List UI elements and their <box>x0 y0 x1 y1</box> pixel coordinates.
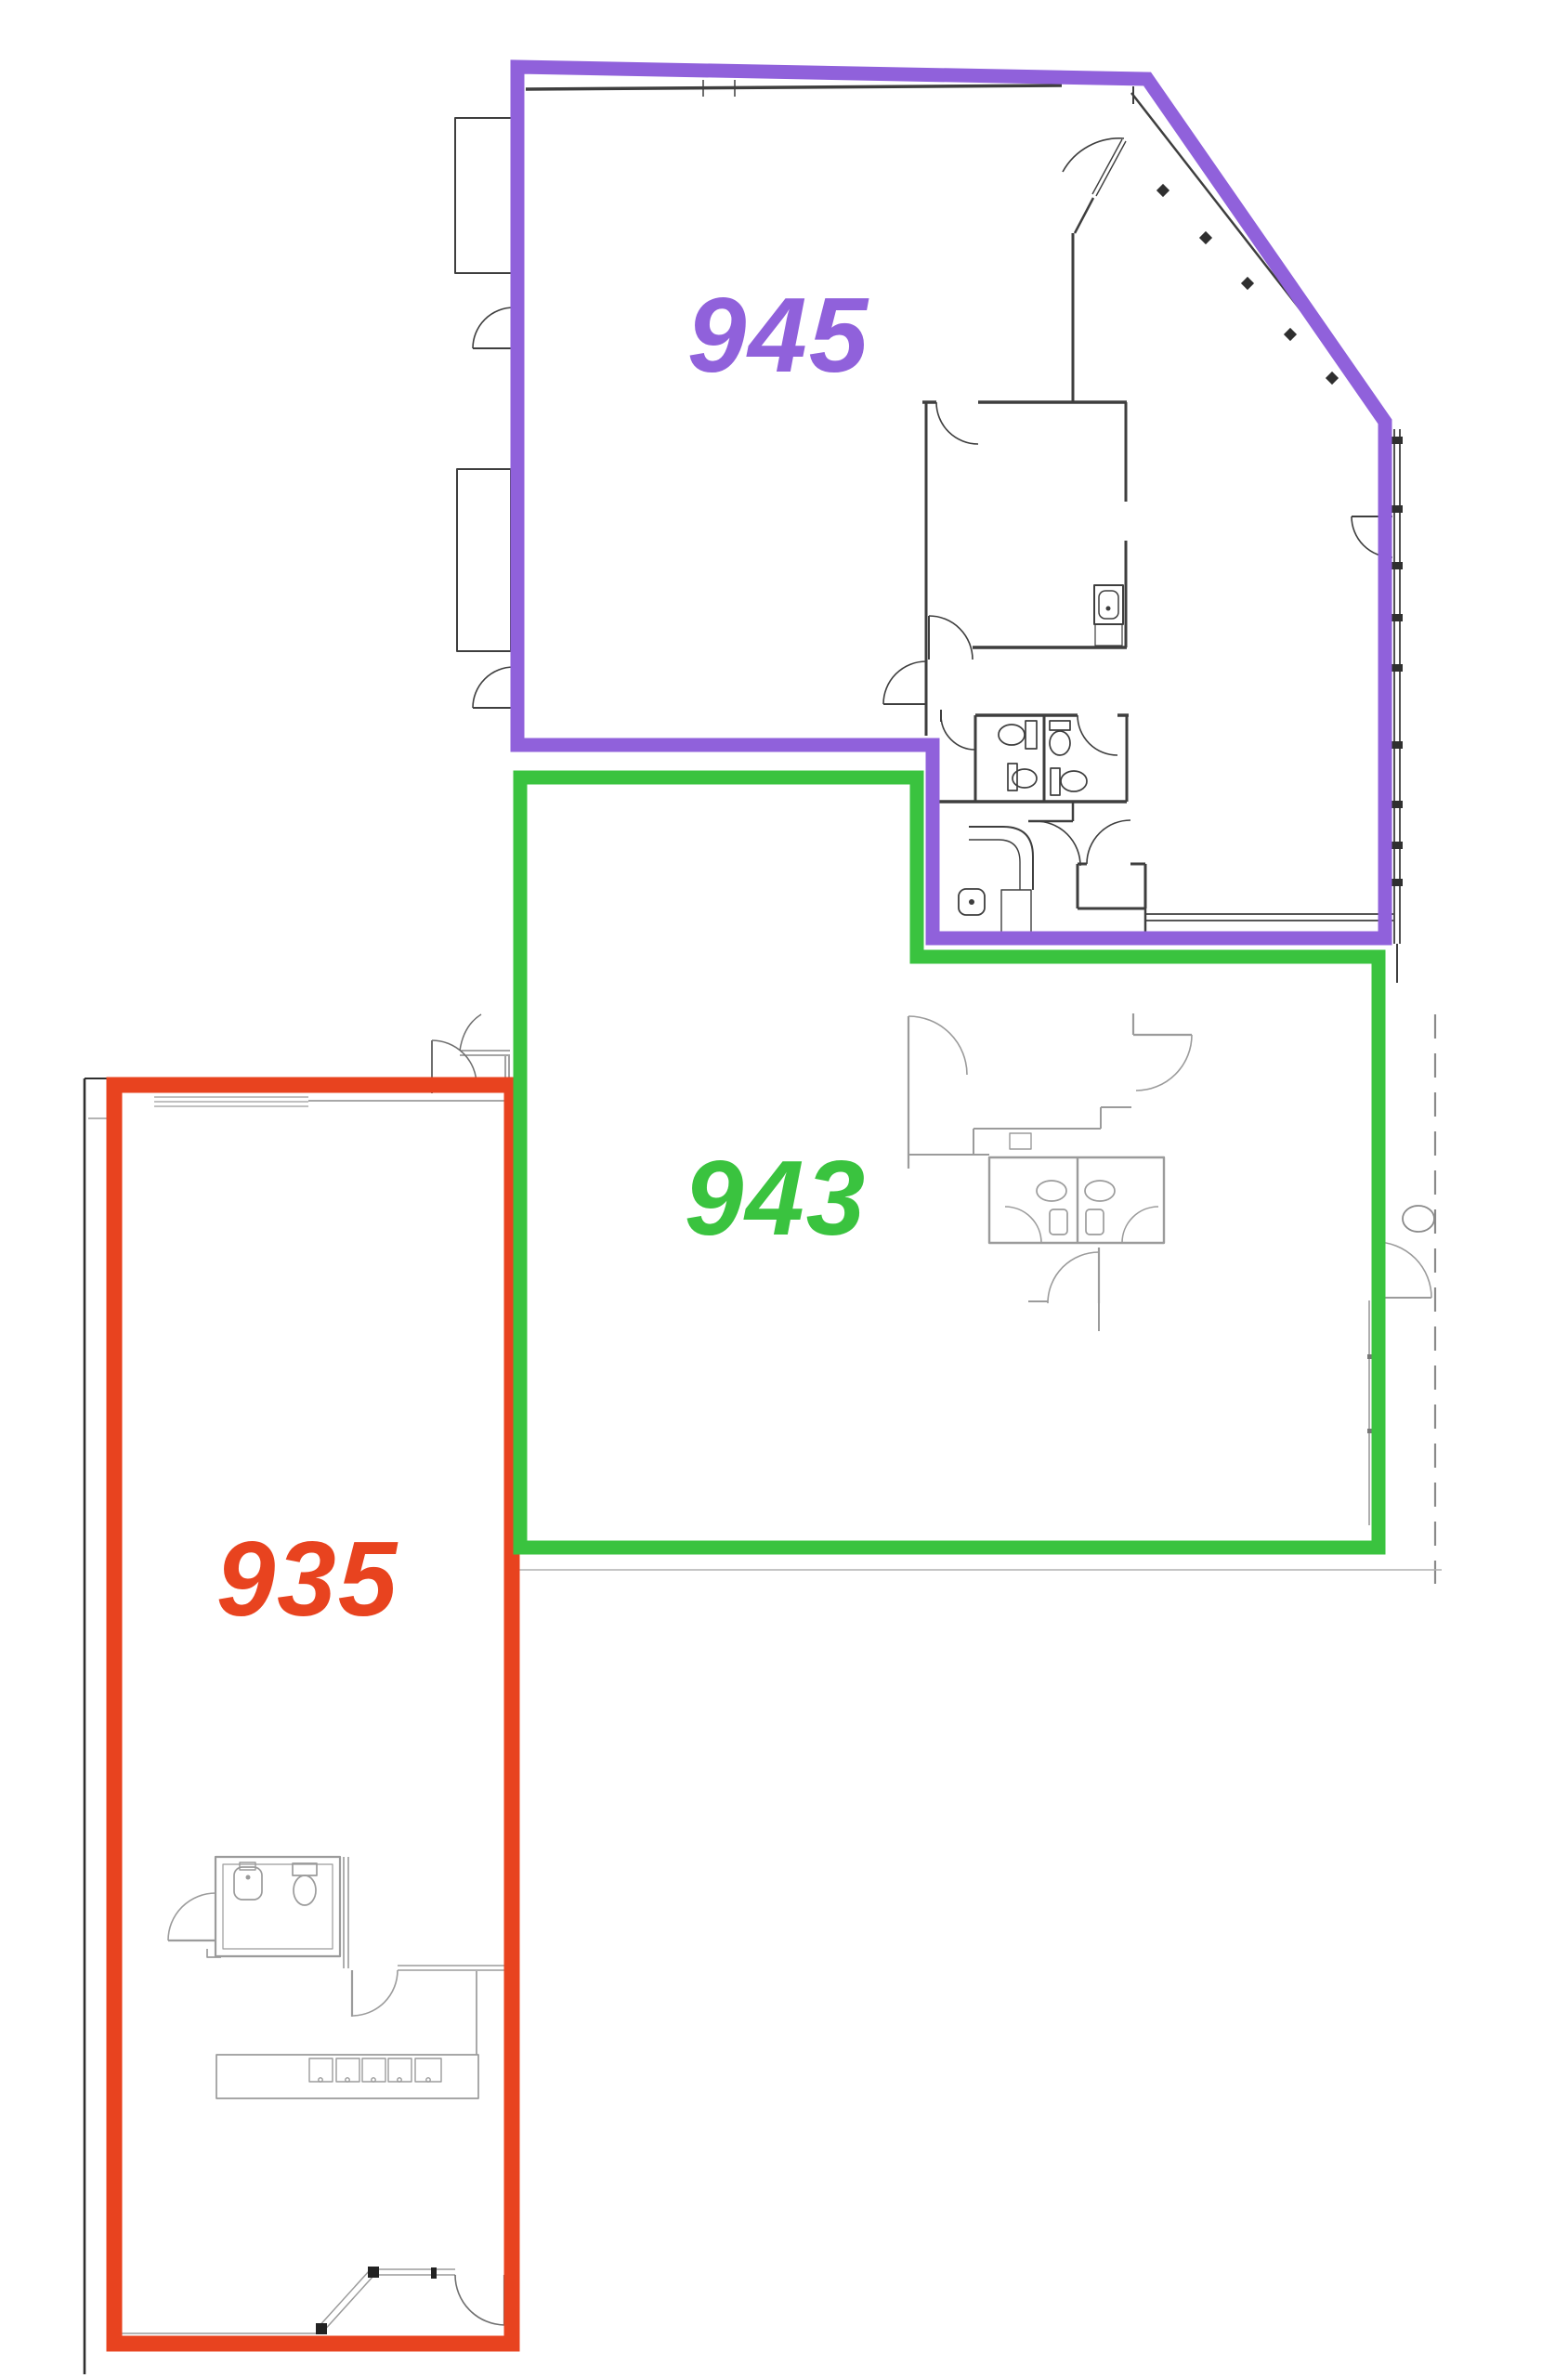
glass-post <box>368 2267 379 2278</box>
suite-945-label: 945 <box>687 277 869 395</box>
toilet <box>1037 1181 1066 1201</box>
door-arc <box>929 616 973 660</box>
sink <box>234 1867 262 1900</box>
toilet-tank <box>1051 768 1060 795</box>
wall-double <box>460 1051 510 1055</box>
door-arc <box>883 661 926 704</box>
sink-cabinet <box>1095 624 1122 646</box>
door-arc <box>908 1016 967 1075</box>
wall-stub <box>1133 1013 1192 1035</box>
toilet-tank <box>1026 721 1037 749</box>
suite-943-plan-walls <box>514 1013 1442 1584</box>
suite-935-label: 935 <box>216 1521 399 1639</box>
door-arc <box>455 2275 504 2325</box>
door-leaf <box>1092 139 1126 196</box>
storage-side-walls <box>1078 864 1145 908</box>
counter-cabinets <box>309 2058 441 2082</box>
column-marker <box>1403 1206 1434 1232</box>
wall-double <box>398 1966 507 1970</box>
storefront-glass <box>374 2269 455 2275</box>
door-arc <box>1005 1207 1041 1243</box>
suite-943-label: 943 <box>685 1140 867 1258</box>
toilet-tank <box>1050 721 1070 730</box>
sink-faucet <box>240 1862 255 1870</box>
wall-top <box>526 85 1062 89</box>
corridor-stubs <box>1028 1301 1099 1331</box>
corridor-wall-double <box>1145 914 1393 921</box>
restroom-inner-wall <box>223 1864 333 1949</box>
sink-drain <box>969 899 974 905</box>
glass-post <box>431 2267 437 2279</box>
door-arc <box>1136 1035 1192 1091</box>
suite-945-outline <box>517 67 1385 938</box>
counter-outer <box>969 827 1033 890</box>
sink-drain <box>1106 607 1111 611</box>
floor-plan-canvas: 945 943 935 <box>0 0 1568 2378</box>
toilet-tank <box>293 1863 317 1875</box>
toilet <box>1061 771 1087 791</box>
wall-double <box>344 1857 348 1968</box>
suite-935-outline <box>114 1085 512 2344</box>
door-arc <box>1036 821 1080 866</box>
suite-943-outline <box>520 777 1379 1548</box>
wall-recess <box>1010 1133 1031 1149</box>
door-arc <box>1063 138 1124 172</box>
door-arc <box>168 1893 216 1940</box>
right-wall-mullion-ticks <box>1391 437 1403 886</box>
door-arc-upper <box>460 1014 481 1051</box>
door-arc <box>941 715 975 750</box>
toilet <box>999 725 1025 745</box>
corridor-walls <box>908 1107 1131 1155</box>
door-arc <box>1087 820 1130 864</box>
sink <box>1050 1209 1067 1235</box>
glass-post <box>316 2323 327 2334</box>
alcove-upper <box>455 118 514 273</box>
toilet <box>1013 769 1037 788</box>
wall-angled-stub <box>1075 198 1093 233</box>
sink-drain <box>246 1875 251 1880</box>
toilet <box>1085 1181 1115 1201</box>
sink-basin <box>1099 591 1118 619</box>
toilet <box>1050 731 1070 755</box>
toilet <box>294 1875 316 1905</box>
door-arc <box>352 1970 398 2016</box>
door-arc <box>1048 1252 1099 1303</box>
counter <box>216 2055 478 2098</box>
door-arc <box>1122 1207 1158 1243</box>
door-arc <box>1078 715 1117 755</box>
counter-inner <box>969 840 1020 890</box>
window-band <box>154 1097 308 1106</box>
door-arc <box>473 667 514 708</box>
floor-plan-page: 945 943 935 <box>0 0 1568 2378</box>
door-arc <box>936 402 978 444</box>
sink <box>1086 1209 1104 1235</box>
door-arc <box>473 307 514 348</box>
alcove-lower <box>457 469 511 651</box>
suite-935-plan-walls <box>88 1014 510 2334</box>
counter-cabinet <box>1001 890 1031 936</box>
